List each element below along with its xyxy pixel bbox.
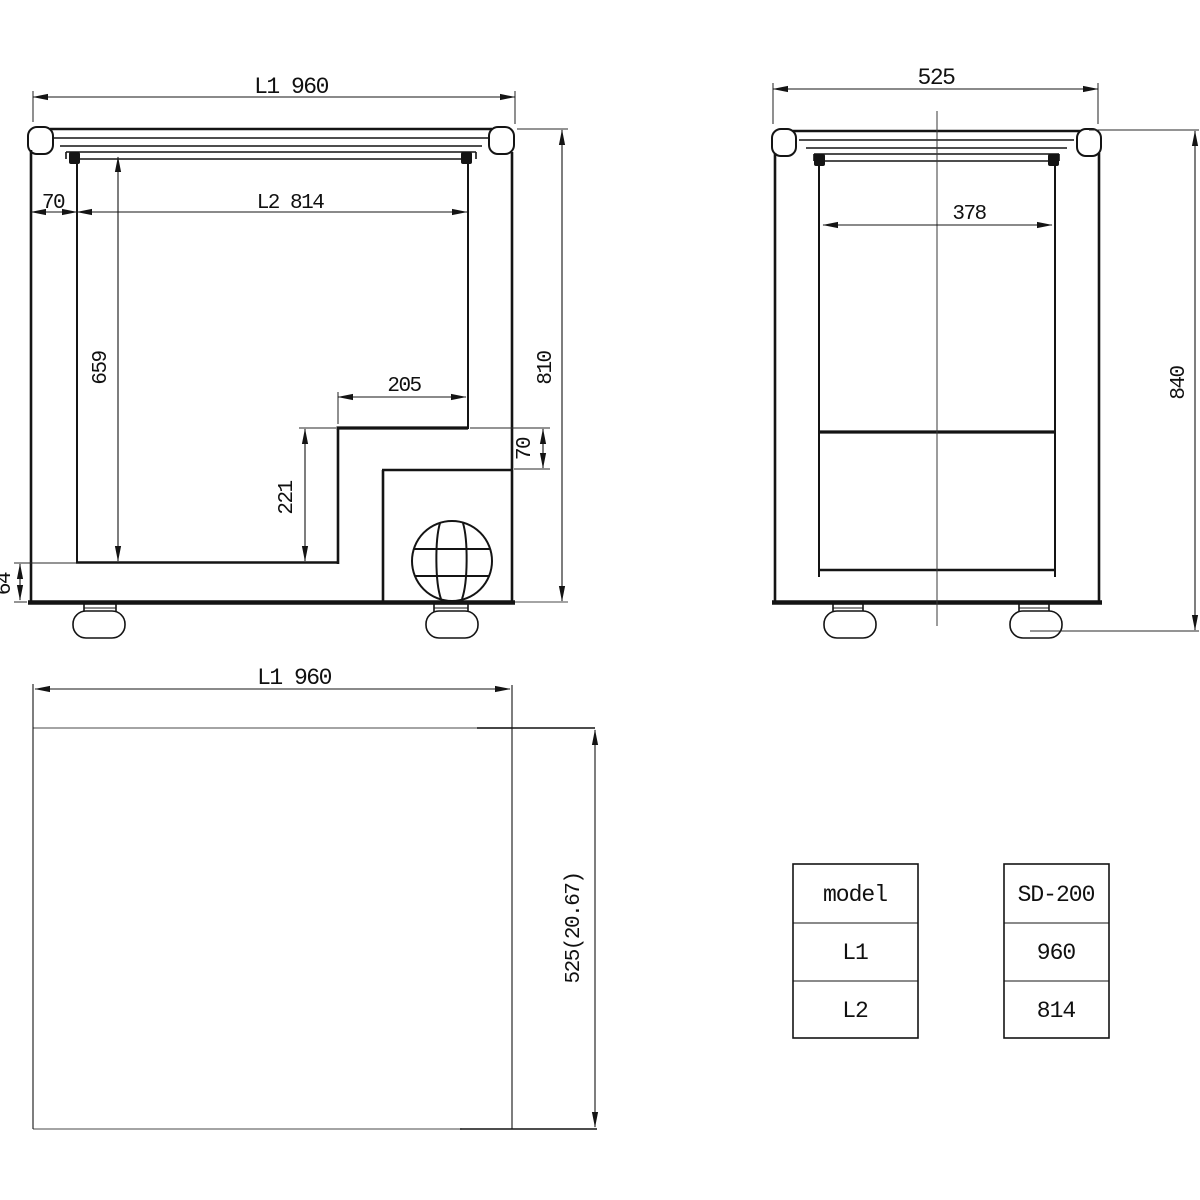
side-cabinet-outline — [772, 111, 1102, 626]
table-cell-l2-label: L2 — [842, 998, 868, 1024]
lid-right-cap-icon — [489, 127, 514, 154]
dim-label-70-left: 70 — [42, 192, 65, 215]
dim-label-205: 205 — [387, 375, 421, 398]
front-lid — [28, 127, 514, 164]
lid-left-cap-icon — [28, 127, 53, 154]
lid-left-cap-icon — [772, 129, 796, 156]
lid-seal-icon — [814, 154, 825, 166]
spec-table-values: SD-200 960 814 — [1004, 864, 1109, 1038]
foot-icon — [426, 611, 478, 638]
dim-label-659: 659 — [90, 350, 113, 384]
drawing-canvas: L1 960 70 L2 814 659 205 221 64 810 70 — [0, 0, 1200, 1200]
freezer-technical-drawing: L1 960 70 L2 814 659 205 221 64 810 70 — [0, 0, 1200, 1200]
compressor-body — [412, 521, 492, 601]
side-section-view: 525 378 840 — [772, 65, 1199, 638]
dim-label-64: 64 — [0, 572, 17, 595]
lid-right-cap-icon — [1077, 129, 1101, 156]
dim-label-378: 378 — [952, 203, 986, 226]
spec-table-labels: model L1 L2 — [793, 864, 918, 1038]
top-view: L1 960 525(20.67) — [33, 665, 597, 1129]
dim-label-525: 525 — [918, 65, 956, 91]
foot-icon — [73, 611, 125, 638]
top-view-dimensions: L1 960 525(20.67) — [35, 665, 595, 1127]
dim-label-l1-top: L1 960 — [257, 665, 332, 691]
table-cell-l1-value: 960 — [1037, 940, 1076, 966]
front-feet — [73, 604, 478, 638]
foot-icon — [1010, 611, 1062, 638]
extension-line — [14, 563, 76, 602]
dim-label-525-top: 525(20.67) — [563, 872, 586, 983]
compressor-icon — [412, 521, 492, 601]
dim-label-l1: L1 960 — [254, 74, 329, 100]
foot-icon — [824, 611, 876, 638]
table-cell-model-label: model — [823, 882, 887, 908]
lid-seal-icon — [1048, 154, 1059, 166]
lid-seal-icon — [461, 152, 472, 164]
extension-line — [470, 428, 550, 469]
top-view-outline — [33, 684, 597, 1129]
front-view-dimensions: L1 960 70 L2 814 659 205 221 64 810 70 — [0, 74, 568, 602]
dim-label-l2: L2 814 — [257, 192, 325, 215]
dim-label-810: 810 — [535, 350, 558, 384]
dim-label-840: 840 — [1168, 365, 1191, 399]
side-view-dimensions: 525 378 840 — [773, 65, 1199, 631]
spec-table: model L1 L2 SD-200 960 814 — [793, 864, 1109, 1038]
table-cell-l1-label: L1 — [842, 940, 868, 966]
side-feet — [824, 604, 1062, 638]
dim-label-221: 221 — [276, 480, 299, 514]
dim-label-70-step: 70 — [514, 437, 537, 460]
front-section-view: L1 960 70 L2 814 659 205 221 64 810 70 — [0, 74, 568, 638]
lid-seal-icon — [69, 152, 80, 164]
table-cell-l2-value: 814 — [1037, 998, 1076, 1024]
table-cell-model-value: SD-200 — [1018, 882, 1095, 908]
lid-flange-top — [66, 152, 476, 159]
